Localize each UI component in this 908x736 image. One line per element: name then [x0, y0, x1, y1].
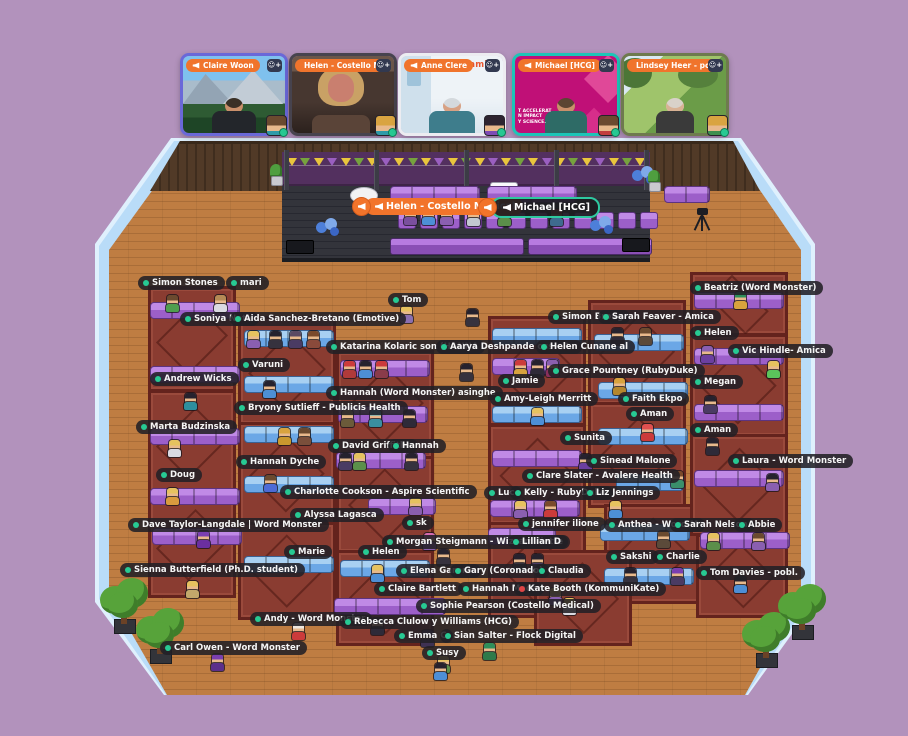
attendee-label: Rebecca Clulow y Williams (HCG): [340, 615, 519, 629]
couch-row[interactable]: [490, 500, 580, 517]
mini-avatar: [484, 115, 505, 136]
attendee-avatar[interactable]: [705, 438, 720, 455]
attendee-label: Simon Stones: [138, 276, 225, 290]
stage-pole: [464, 150, 469, 190]
attendee-name: Helen: [704, 328, 732, 338]
bunting-flag: [595, 158, 605, 166]
bunting-flag: [354, 158, 364, 166]
online-status-dot: [611, 128, 620, 137]
bunting-flag: [394, 158, 404, 166]
attendee-name: Sarah Feaver - Amica: [612, 312, 714, 322]
attendee-name: Grace Pountney (RubyDuke): [562, 366, 698, 376]
attendee-label: Alyssa Lagasca: [290, 508, 384, 522]
attendee-name: Helen Cunane al: [550, 342, 628, 352]
bunting-flag: [314, 158, 324, 166]
mini-avatar: [598, 115, 619, 136]
attendee-label: jennifer ilione: [518, 517, 606, 531]
attendee-name: Susy: [436, 648, 459, 658]
bunting-flag: [300, 158, 310, 166]
bunting-flag: [609, 158, 619, 166]
bunting-flag: [501, 158, 511, 166]
add-person-button[interactable]: ☺+: [267, 59, 282, 72]
attendee-label: Aman: [626, 407, 674, 421]
bunting-flag: [475, 158, 485, 166]
stage-pole: [554, 150, 559, 190]
attendee-label: Susy: [422, 646, 466, 660]
couch-row[interactable]: [492, 450, 582, 467]
attendee-name: Helen: [372, 547, 400, 557]
mini-avatar: [375, 115, 396, 136]
attendee-label: Grace Pountney (RubyDuke): [548, 364, 705, 378]
speaker-label-michael: Michael [HCG]: [478, 197, 600, 218]
attendee-avatar[interactable]: [765, 474, 780, 491]
video-tile-3[interactable]: Anne Clere☺+amica: [398, 53, 506, 136]
attendee-name: Aida Sanchez-Bretano (Emotive): [244, 314, 399, 324]
attendee-name: Aman: [640, 409, 667, 419]
attendee-avatar[interactable]: [213, 295, 228, 312]
attendee-label: Sunita: [560, 431, 612, 445]
attendee-name: Charlie: [666, 552, 700, 562]
attendee-avatar[interactable]: [513, 501, 528, 518]
attendee-avatar[interactable]: [185, 581, 200, 598]
participant-silhouette: [212, 98, 256, 133]
attendee-avatar[interactable]: [766, 361, 781, 378]
attendee-avatar[interactable]: [433, 663, 448, 680]
stage-desk: [390, 238, 524, 255]
attendee-label: Aida Sanchez-Bretano (Emotive): [230, 312, 406, 326]
attendee-label: Marie: [284, 545, 332, 559]
attendee-label: Hannah: [388, 439, 446, 453]
attendee-name: sk: [416, 518, 427, 528]
attendee-label: Sinead Malone: [586, 454, 677, 468]
attendee-name: Sinead Malone: [600, 456, 670, 466]
attendee-avatar[interactable]: [358, 361, 373, 378]
video-tile-name: Lindsey Heer - pobl.: [627, 59, 717, 72]
attendee-avatar[interactable]: [165, 488, 180, 505]
attendee-name: Vic Hindle- Amica: [742, 346, 826, 356]
couch-row[interactable]: [664, 186, 710, 203]
attendee-avatar[interactable]: [370, 565, 385, 582]
attendee-name: Gary (Coronado): [464, 566, 543, 576]
attendee-avatar[interactable]: [288, 331, 303, 348]
video-tile-5[interactable]: Lindsey Heer - pobl.☺+: [621, 53, 729, 136]
attendee-name: Hannah (Word Monster) asinghe: [340, 388, 496, 398]
attendee-label: Vic Hindle- Amica: [728, 344, 833, 358]
attendee-name: Sakshi: [620, 552, 652, 562]
attendee-label: Tom: [388, 293, 428, 307]
attendee-avatar[interactable]: [640, 424, 655, 441]
attendee-label: Abbie: [734, 518, 782, 532]
megaphone-icon: [525, 63, 532, 69]
balloons: [590, 216, 614, 238]
participant-silhouette: [429, 98, 475, 133]
attendee-label: Charlie: [652, 550, 707, 564]
stage-chair[interactable]: [640, 212, 658, 229]
attendee-name: Laura - Word Monster: [742, 456, 846, 466]
attendee-name: Alyssa Lagasca: [304, 510, 377, 520]
attendee-name: Marie: [298, 547, 325, 557]
potted-plant: [268, 164, 284, 186]
add-person-button[interactable]: ☺+: [485, 59, 500, 72]
attendee-name: Rebecca Clulow y Williams (HCG): [354, 617, 512, 627]
attendee-avatar[interactable]: [482, 643, 497, 660]
attendee-name: Abbie: [748, 520, 775, 530]
attendee-label: Sian Salter - Flock Digital: [440, 629, 583, 643]
attendee-label: mari: [226, 276, 269, 290]
slide-caption-text: T ACCELERATN IMPACTY SCIENCE.: [518, 109, 551, 126]
bunting-flag: [434, 158, 444, 166]
attendee-avatar[interactable]: [263, 475, 278, 492]
couch-row[interactable]: [244, 376, 334, 393]
attendee-name: Sian Salter - Flock Digital: [454, 631, 576, 641]
attendee-label: Sienna Butterfield (Ph.D. student): [120, 563, 305, 577]
video-tile-name: Helen - Costello Me: [295, 59, 385, 72]
attendee-name: Andrew Wicks: [164, 374, 232, 384]
attendee-name: jennifer ilione: [532, 519, 599, 529]
attendee-avatar[interactable]: [700, 346, 715, 363]
attendee-label: Lillian D: [508, 535, 568, 549]
attendee-avatar[interactable]: [268, 331, 283, 348]
camera-tripod: [694, 208, 710, 234]
attendee-label: Helen: [690, 326, 739, 340]
online-status-dot: [279, 128, 288, 137]
attendee-label: Megan: [690, 375, 743, 389]
attendee-label: Doug: [156, 468, 202, 482]
attendee-avatar[interactable]: [342, 361, 357, 378]
attendee-label: Marta Budzinska: [136, 420, 237, 434]
bunting-flag: [421, 158, 431, 166]
attendee-name: Sophie Pearson (Costello Medical): [430, 601, 594, 611]
attendee-label: Claudia: [534, 564, 591, 578]
attendee-name: Claire Bartlett: [388, 584, 456, 594]
mini-avatar: [707, 115, 728, 136]
attendee-name: Clare Slater - Avalere Health: [536, 471, 673, 481]
video-tile-name: Michael [HCG]: [518, 59, 601, 72]
attendee-label: Charlotte Cookson - Aspire Scientific: [280, 485, 477, 499]
attendee-name: Varuni: [252, 360, 283, 370]
attendee-name: Aman: [704, 425, 731, 435]
stage-speaker-box: [622, 238, 650, 252]
attendee-name: Tom: [402, 295, 421, 305]
attendee-label: Helen: [358, 545, 407, 559]
bunting-flag: [341, 158, 351, 166]
bunting-flag: [327, 158, 337, 166]
attendee-label: Liz Jennings: [582, 486, 660, 500]
attendee-label: Amy-Leigh Merritt: [490, 392, 598, 406]
video-tile-4[interactable]: Michael [HCG]☺+T ACCELERATN IMPACTY SCIE…: [512, 53, 620, 136]
attendee-avatar[interactable]: [656, 531, 671, 548]
bunting-flag: [528, 158, 538, 166]
attendee-avatar[interactable]: [703, 396, 718, 413]
potted-plant: [646, 170, 662, 192]
online-status-dot: [497, 128, 506, 137]
video-tile-name: Anne Clere: [404, 59, 473, 72]
video-scene-part: [312, 115, 370, 133]
attendee-name: Lillian D: [522, 537, 561, 547]
bunting-flag: [488, 158, 498, 166]
balloons: [316, 218, 340, 240]
attendee-avatar[interactable]: [670, 568, 685, 585]
attendee-name: Bryony Sutlieff - Publicis Health: [248, 403, 401, 413]
attendee-avatar[interactable]: [608, 501, 623, 518]
tree: [776, 580, 828, 640]
attendee-label: Faith Ekpo: [618, 392, 689, 406]
bunting-flag: [381, 158, 391, 166]
virtual-space-canvas: Helen - Costello Medical Michael [HCG] S…: [0, 0, 908, 736]
attendee-avatar[interactable]: [638, 328, 653, 345]
attendee-avatar[interactable]: [210, 654, 225, 671]
attendee-label: sk: [402, 516, 434, 530]
attendee-label: Varuni: [238, 358, 290, 372]
attendee-avatar[interactable]: [338, 453, 353, 470]
attendee-avatar[interactable]: [408, 498, 423, 515]
attendee-label: Beatriz (Word Monster): [690, 281, 823, 295]
attendee-avatar[interactable]: [543, 501, 558, 518]
attendee-label: Hannah (Word Monster) asinghe: [326, 386, 503, 400]
attendee-name: Amy-Leigh Merritt: [504, 394, 591, 404]
megaphone-icon: [503, 204, 511, 211]
attendee-avatar[interactable]: [196, 531, 211, 548]
attendee-name: Faith Ekpo: [632, 394, 682, 404]
online-status-dot: [720, 128, 729, 137]
attendee-label: Kate Booth (KommuniKate): [514, 582, 666, 596]
attendee-avatar[interactable]: [306, 331, 321, 348]
add-person-button[interactable]: ☺+: [599, 59, 614, 72]
participant-silhouette: [656, 98, 694, 133]
add-person-button[interactable]: ☺+: [376, 59, 391, 72]
attendee-label: Laura - Word Monster: [728, 454, 853, 468]
attendee-label: Jamie: [498, 374, 545, 388]
attendee-label: Andrew Wicks: [150, 372, 239, 386]
attendee-avatar[interactable]: [751, 533, 766, 550]
attendee-name: Sunita: [574, 433, 605, 443]
megaphone-icon: [478, 198, 497, 217]
attendee-label: Sarah Feaver - Amica: [598, 310, 721, 324]
attendee-label: Helen Cunane al: [536, 340, 635, 354]
attendee-label: Sakshi: [606, 550, 659, 564]
attendee-name: Marta Budzinska: [150, 422, 230, 432]
attendee-avatar[interactable]: [297, 428, 312, 445]
attendee-name: Hannah Dyche: [250, 457, 319, 467]
attendee-avatar[interactable]: [183, 393, 198, 410]
add-person-button[interactable]: ☺+: [708, 59, 723, 72]
attendee-label: Sophie Pearson (Costello Medical): [416, 599, 601, 613]
attendee-label: Bryony Sutlieff - Publicis Health: [234, 401, 408, 415]
megaphone-icon: [375, 203, 383, 210]
attendee-avatar[interactable]: [404, 453, 419, 470]
attendee-avatar[interactable]: [465, 309, 480, 326]
stage-pole: [284, 150, 289, 190]
bunting-flag: [408, 158, 418, 166]
attendee-name: Tom Davies - pobl.: [710, 568, 798, 578]
attendee-label: Aman: [690, 423, 738, 437]
video-tile-1[interactable]: Claire Woon☺+: [180, 53, 288, 136]
attendee-name: Simon Stones: [152, 278, 218, 288]
attendee-avatar[interactable]: [165, 295, 180, 312]
megaphone-icon: [352, 197, 371, 216]
attendee-avatar[interactable]: [530, 408, 545, 425]
tree: [134, 604, 186, 664]
bunting-flag: [542, 158, 552, 166]
attendee-label: Clare Slater - Avalere Health: [522, 469, 680, 483]
attendee-name: Beatriz (Word Monster): [704, 283, 816, 293]
attendee-label: Carl Owen - Word Monster: [160, 641, 307, 655]
attendee-avatar[interactable]: [374, 361, 389, 378]
attendee-avatar[interactable]: [246, 331, 261, 348]
attendee-avatar[interactable]: [459, 364, 474, 381]
attendee-name: Charlotte Cookson - Aspire Scientific: [294, 487, 470, 497]
bunting-flag: [582, 158, 592, 166]
bunting-flag: [448, 158, 458, 166]
attendee-avatar[interactable]: [352, 453, 367, 470]
attendee-name: Jamie: [512, 376, 538, 386]
attendee-name: Doug: [170, 470, 195, 480]
attendee-name: Hannah: [402, 441, 439, 451]
video-tile-2[interactable]: Helen - Costello Me☺+: [289, 53, 397, 136]
attendee-name: mari: [240, 278, 262, 288]
online-status-dot: [388, 128, 397, 137]
stage-speaker-box: [286, 240, 314, 254]
speaker-name: Michael [HCG]: [514, 202, 590, 213]
attendee-label: Claire Bartlett: [374, 582, 463, 596]
attendee-label: Tom Davies - pobl.: [696, 566, 805, 580]
video-tile-name: Claire Woon: [186, 59, 260, 72]
attendee-name: Liz Jennings: [596, 488, 653, 498]
attendee-name: Kate Booth (KommuniKate): [528, 584, 659, 594]
bunting-flag: [515, 158, 525, 166]
couch-row[interactable]: [150, 488, 240, 505]
attendee-avatar[interactable]: [262, 381, 277, 398]
stage-pole: [374, 150, 379, 190]
attendee-name: Sienna Butterfield (Ph.D. student): [134, 565, 298, 575]
attendee-name: Megan: [704, 377, 736, 387]
attendee-label: Hannah Dyche: [236, 455, 326, 469]
megaphone-icon: [411, 63, 418, 69]
megaphone-icon: [193, 63, 200, 69]
attendee-name: Carl Owen - Word Monster: [174, 643, 300, 653]
attendee-avatar[interactable]: [277, 428, 292, 445]
video-scene-part: [328, 74, 354, 102]
attendee-avatar[interactable]: [167, 440, 182, 457]
bunting-flag: [622, 158, 632, 166]
attendee-name: Claudia: [548, 566, 584, 576]
bunting-flag: [568, 158, 578, 166]
stage-chair[interactable]: [618, 212, 636, 229]
attendee-avatar[interactable]: [706, 533, 721, 550]
mini-avatar: [266, 115, 287, 136]
